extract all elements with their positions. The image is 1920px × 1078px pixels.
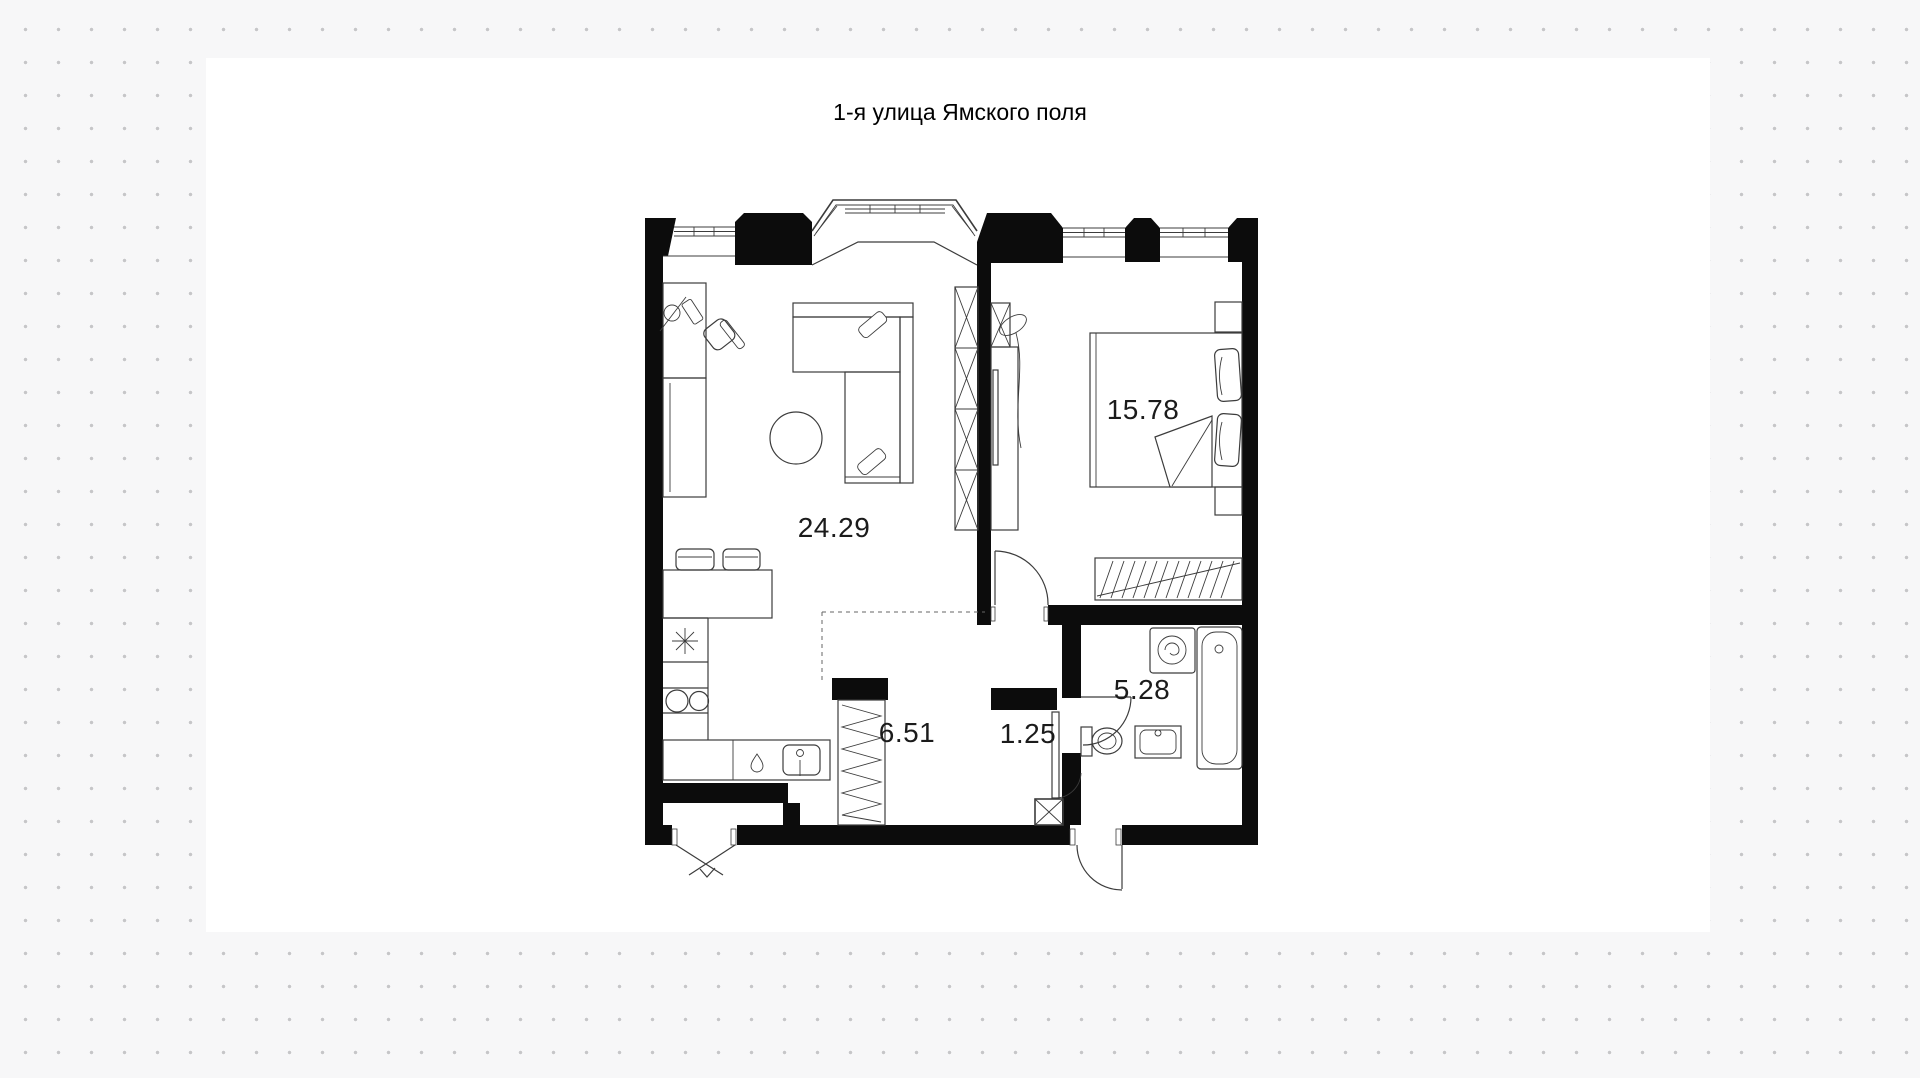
kitchen-sink	[783, 745, 820, 776]
coffee-table	[770, 412, 822, 464]
outer-walls	[645, 213, 1258, 845]
bar-stool-1	[676, 549, 714, 570]
bar-stool-2	[723, 549, 760, 570]
office-chair	[701, 317, 745, 353]
floor-plan-svg: 1-я улица Ямского поля	[0, 0, 1920, 1078]
nightstand-top	[1215, 302, 1242, 332]
bookshelf-cabinet	[663, 378, 706, 497]
bedroom-wardrobe	[1095, 558, 1242, 600]
tv	[993, 370, 998, 465]
water-drop-icon	[751, 754, 763, 772]
street-title: 1-я улица Ямского поля	[833, 99, 1087, 125]
room-label-closet: 1.25	[1000, 718, 1057, 749]
cooktop-burners	[666, 690, 709, 712]
floor-lamp	[996, 310, 1030, 448]
sofa	[793, 303, 913, 483]
wardrobe-living	[955, 287, 978, 530]
nightstand-bottom	[1215, 487, 1242, 515]
bathtub	[1197, 627, 1242, 769]
zone-dashed-line	[822, 612, 985, 682]
window-left	[663, 227, 735, 256]
entrance-door	[672, 829, 736, 877]
vent-shaft	[1035, 799, 1063, 825]
window-bedroom-1	[1063, 228, 1125, 257]
desk	[660, 283, 706, 378]
room-label-bedroom: 15.78	[1107, 394, 1180, 425]
room-label-hallway: 6.51	[879, 717, 936, 748]
washing-machine	[1150, 628, 1195, 673]
bar-counter	[663, 570, 772, 618]
room-label-bathroom: 5.28	[1114, 674, 1171, 705]
exterior-door-right	[1070, 829, 1122, 890]
hob-star-icon	[672, 628, 698, 654]
blanket	[1155, 416, 1212, 487]
window-bedroom-2	[1160, 228, 1228, 257]
bay-window	[812, 200, 977, 265]
bedroom-door	[991, 551, 1048, 621]
bathroom-sink	[1135, 726, 1181, 758]
interior-walls	[663, 263, 1242, 825]
room-label-living-kitchen: 24.29	[798, 512, 871, 543]
